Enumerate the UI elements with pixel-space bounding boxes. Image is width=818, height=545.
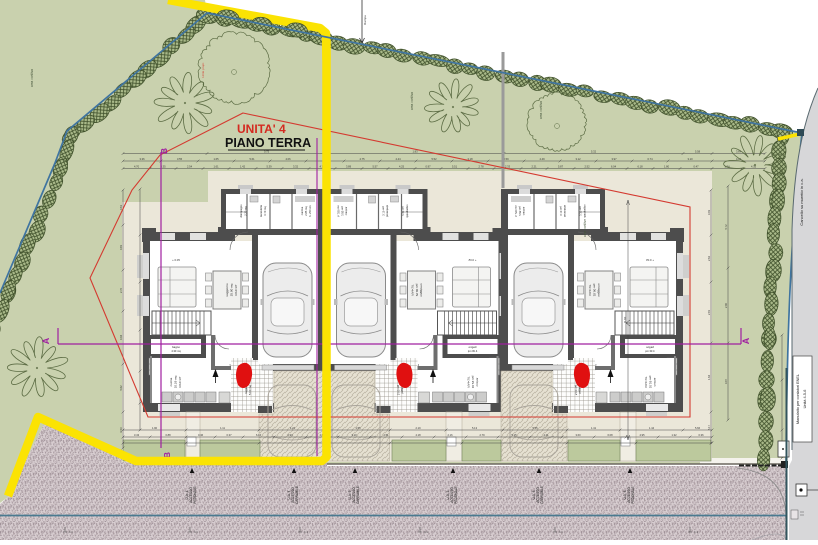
svg-text:4.21: 4.21 — [543, 433, 549, 437]
svg-text:Manufatto per contatori ENEL: Manufatto per contatori ENEL — [796, 374, 800, 424]
svg-text:cucina: cucina — [653, 377, 657, 386]
svg-text:6.04: 6.04 — [611, 164, 617, 168]
svg-text:h. 250 cm: h. 250 cm — [308, 205, 312, 216]
svg-text:5.39: 5.39 — [266, 164, 272, 168]
svg-text:5.00 mq: 5.00 mq — [574, 385, 578, 396]
svg-text:soggiorno: soggiorno — [597, 283, 601, 297]
svg-text:4.25: 4.25 — [399, 164, 405, 168]
svg-text:1.44: 1.44 — [649, 426, 655, 430]
svg-text:6.16: 6.16 — [256, 433, 262, 437]
svg-text:RAI=1/7: RAI=1/7 — [644, 376, 648, 387]
svg-text:5.00 mq: 5.00 mq — [397, 385, 401, 396]
svg-text:+ 0.05: + 0.05 — [646, 258, 654, 262]
svg-text:UNITA' 4: UNITA' 4 — [237, 122, 286, 136]
svg-text:10.29 mq: 10.29 mq — [471, 375, 475, 388]
svg-text:area cortilive: area cortilive — [583, 219, 587, 237]
svg-text:4.1: 4.1 — [694, 530, 699, 534]
svg-text:5.55: 5.55 — [532, 426, 538, 430]
svg-text:5.72: 5.72 — [724, 224, 728, 230]
svg-text:PEDONALE: PEDONALE — [193, 486, 197, 503]
svg-text:0.88: 0.88 — [165, 433, 171, 437]
svg-text:4.49: 4.49 — [539, 157, 545, 161]
svg-text:l.mite propr.: l.mite propr. — [201, 62, 205, 78]
svg-text:5.15: 5.15 — [511, 433, 517, 437]
svg-text:+ 0.05: + 0.05 — [172, 258, 180, 262]
svg-text:4.44: 4.44 — [395, 157, 401, 161]
svg-text:3.36: 3.36 — [139, 157, 145, 161]
svg-text:0.97: 0.97 — [425, 164, 431, 168]
svg-text:1.32: 1.32 — [671, 433, 677, 437]
svg-text:4.1: 4.1 — [194, 530, 199, 534]
svg-text:3.70 mq: 3.70 mq — [263, 206, 267, 216]
svg-text:cantina: cantina — [345, 206, 349, 215]
svg-text:2.70: 2.70 — [119, 287, 123, 293]
svg-text:CARRABILE: CARRABILE — [540, 486, 544, 504]
svg-text:B: B — [159, 148, 169, 154]
svg-text:bagno: bagno — [468, 345, 476, 349]
svg-text:RAI=1/7: RAI=1/7 — [411, 284, 415, 295]
svg-text:5.66: 5.66 — [695, 426, 701, 430]
svg-text:area cortiliva: area cortiliva — [30, 69, 34, 87]
svg-text:2.93: 2.93 — [287, 433, 293, 437]
svg-text:bagno: bagno — [646, 345, 654, 349]
svg-text:1.21: 1.21 — [290, 426, 296, 430]
svg-text:h. 250 cm: h. 250 cm — [337, 205, 341, 216]
svg-text:2.79: 2.79 — [479, 433, 485, 437]
svg-text:4.06: 4.06 — [285, 157, 291, 161]
svg-text:3.10: 3.10 — [687, 157, 693, 161]
svg-text:4.18: 4.18 — [415, 433, 421, 437]
svg-text:3.70 mq: 3.70 mq — [559, 206, 563, 216]
svg-text:0.47: 0.47 — [693, 164, 699, 168]
svg-text:Unità 4-5-6: Unità 4-5-6 — [803, 390, 807, 409]
svg-text:0.46: 0.46 — [198, 433, 204, 437]
svg-text:2.85 mq: 2.85 mq — [518, 206, 522, 216]
svg-text:3.60: 3.60 — [575, 433, 581, 437]
svg-text:lavanderia: lavanderia — [259, 204, 263, 217]
svg-text:5.51: 5.51 — [452, 164, 458, 168]
svg-text:3.12: 3.12 — [575, 157, 581, 161]
svg-text:disimpegno: disimpegno — [583, 204, 587, 218]
svg-text:RAI=1/7: RAI=1/7 — [588, 284, 592, 295]
svg-text:1.65: 1.65 — [213, 157, 219, 161]
svg-text:lavanderia: lavanderia — [563, 204, 567, 217]
svg-text:cucina: cucina — [169, 377, 173, 386]
svg-text:PEDONALE: PEDONALE — [454, 486, 458, 503]
svg-text:4.1: 4.1 — [559, 530, 564, 534]
svg-text:3.70 mq: 3.70 mq — [382, 206, 386, 216]
svg-text:bagno: bagno — [172, 345, 180, 349]
svg-text:25.90 mq: 25.90 mq — [593, 283, 597, 296]
svg-text:area cortiliva: area cortiliva — [539, 101, 543, 119]
svg-text:0.36: 0.36 — [698, 433, 704, 437]
svg-text:RAI=1/7: RAI=1/7 — [178, 376, 182, 387]
svg-text:3.55: 3.55 — [177, 157, 183, 161]
svg-text:2.81: 2.81 — [707, 309, 711, 315]
svg-text:5.87: 5.87 — [558, 164, 564, 168]
svg-text:2.19: 2.19 — [415, 426, 421, 430]
svg-text:2.85 mq: 2.85 mq — [341, 206, 345, 216]
svg-text:A: A — [41, 337, 51, 344]
svg-text:RAI=1/7: RAI=1/7 — [467, 376, 471, 387]
svg-text:3.89: 3.89 — [346, 164, 352, 168]
svg-text:2.30 mq: 2.30 mq — [401, 206, 405, 216]
svg-text:5.57: 5.57 — [372, 164, 378, 168]
svg-text:soggiorno: soggiorno — [420, 283, 424, 297]
svg-text:2.78: 2.78 — [478, 164, 484, 168]
svg-text:cantina: cantina — [522, 206, 526, 215]
svg-text:4.1: 4.1 — [304, 530, 309, 534]
svg-text:5.13: 5.13 — [472, 426, 478, 430]
svg-text:3.97: 3.97 — [724, 378, 728, 384]
svg-text:2.51: 2.51 — [383, 433, 389, 437]
svg-text:0.74: 0.74 — [647, 157, 653, 161]
svg-text:1.41: 1.41 — [591, 426, 597, 430]
svg-text:RAI=1/7: RAI=1/7 — [234, 284, 238, 295]
svg-text:0.37: 0.37 — [226, 433, 232, 437]
svg-text:5.32: 5.32 — [591, 149, 597, 153]
svg-text:lavanderia: lavanderia — [386, 204, 390, 217]
svg-text:3.97: 3.97 — [611, 157, 617, 161]
svg-text:2.30 mq: 2.30 mq — [244, 206, 248, 216]
svg-text:0.81: 0.81 — [119, 244, 123, 250]
svg-text:4.70: 4.70 — [134, 164, 140, 168]
svg-text:1.42: 1.42 — [240, 164, 246, 168]
svg-text:Rampa: Rampa — [363, 15, 367, 25]
svg-text:area cortiliva: area cortiliva — [410, 92, 414, 110]
svg-text:1.56: 1.56 — [355, 426, 361, 430]
svg-text:4.1: 4.1 — [69, 530, 74, 534]
svg-text:1.61: 1.61 — [213, 164, 219, 168]
svg-text:5.58: 5.58 — [695, 149, 701, 153]
svg-text:0.53: 0.53 — [119, 427, 123, 433]
svg-text:4.1: 4.1 — [424, 530, 429, 534]
svg-text:2.85 mq: 2.85 mq — [304, 206, 308, 216]
svg-text:A: A — [741, 337, 751, 344]
svg-text:CARRABILE: CARRABILE — [295, 486, 299, 504]
svg-text:10.29 mq: 10.29 mq — [174, 375, 178, 388]
svg-text:3.93: 3.93 — [707, 209, 711, 215]
svg-text:11.60: 11.60 — [623, 316, 627, 323]
svg-text:4.30 mq: 4.30 mq — [645, 349, 655, 353]
svg-text:6.18: 6.18 — [637, 164, 643, 168]
svg-text:5.61: 5.61 — [249, 157, 255, 161]
svg-text:2.54: 2.54 — [187, 164, 193, 168]
svg-text:Cancello su muretto in c.a.: Cancello su muretto in c.a. — [799, 178, 804, 225]
svg-text:cucina: cucina — [476, 377, 480, 386]
svg-text:2.16: 2.16 — [447, 433, 453, 437]
svg-text:2.21: 2.21 — [531, 164, 537, 168]
svg-text:2.62: 2.62 — [707, 255, 711, 261]
svg-text:soggiorno: soggiorno — [225, 283, 229, 297]
svg-text:3.10: 3.10 — [351, 433, 357, 437]
svg-text:2.30 mq: 2.30 mq — [579, 206, 583, 216]
svg-text:25.90 mq: 25.90 mq — [415, 283, 419, 296]
svg-text:PEDONALE: PEDONALE — [631, 486, 635, 503]
svg-text:1.90: 1.90 — [152, 426, 158, 430]
svg-text:0.94: 0.94 — [119, 334, 123, 340]
svg-text:1.80: 1.80 — [664, 164, 670, 168]
svg-text:5.00 mq: 5.00 mq — [248, 385, 252, 396]
svg-text:4.75: 4.75 — [359, 157, 365, 161]
svg-text:10.29 mq: 10.29 mq — [649, 375, 653, 388]
svg-text:CARRABILE: CARRABILE — [356, 486, 360, 504]
svg-text:h. 250 cm: h. 250 cm — [514, 205, 518, 216]
svg-text:1.64: 1.64 — [707, 374, 711, 380]
svg-text:5.62: 5.62 — [119, 385, 123, 391]
svg-text:cantina: cantina — [300, 206, 304, 215]
svg-text:4.95: 4.95 — [639, 433, 645, 437]
svg-text:1.11: 1.11 — [220, 426, 225, 430]
svg-text:2.33: 2.33 — [505, 164, 511, 168]
svg-text:2.52: 2.52 — [584, 164, 590, 168]
svg-text:4.30 mq: 4.30 mq — [171, 349, 181, 353]
svg-text:5.17: 5.17 — [707, 424, 711, 430]
svg-text:3.32: 3.32 — [293, 164, 299, 168]
svg-text:3.43: 3.43 — [134, 433, 140, 437]
svg-text:2.90: 2.90 — [724, 302, 728, 308]
svg-text:+ 0.05: + 0.05 — [468, 258, 476, 262]
svg-text:PIANO TERRA: PIANO TERRA — [225, 136, 311, 150]
svg-text:5.52: 5.52 — [431, 157, 437, 161]
svg-text:6.08: 6.08 — [607, 433, 613, 437]
svg-text:disimpegno: disimpegno — [239, 204, 243, 218]
svg-text:25.90 mq: 25.90 mq — [230, 283, 234, 296]
svg-text:4.30 mq: 4.30 mq — [467, 349, 477, 353]
svg-text:disimpegno: disimpegno — [406, 204, 410, 218]
svg-text:0.61: 0.61 — [119, 204, 123, 210]
